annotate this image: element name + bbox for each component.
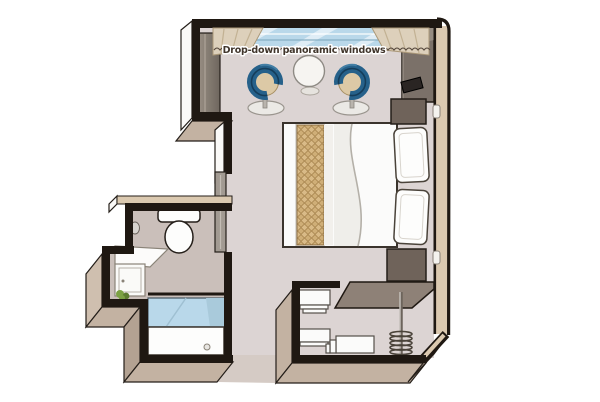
cabin-floor-plan: Drop-down panoramic windows [0,0,600,402]
closet-west-wall [292,281,300,363]
alcove-west-wall [102,246,110,307]
shelf [298,329,330,342]
shower-west-wall [140,299,148,362]
bath-west-wall [125,203,133,250]
corridor-wall-upper [224,120,232,174]
shelf-molding [300,305,328,309]
luggage-bench [336,336,374,353]
bath-top-cap [117,196,232,204]
floor-plan-stage: Drop-down panoramic windows [0,0,600,402]
right-wall-cap [434,26,448,334]
bed-sheet-band [324,125,333,245]
nightstand-top [391,99,426,124]
shelf-molding [303,309,326,313]
toilet-bowl [165,221,193,253]
closet-bottom-face [276,363,426,383]
left-wall-upper [192,19,200,118]
bed-runner [297,125,324,245]
bath-bottom-face [124,362,233,382]
bath-top-wall [125,203,232,211]
panoramic-window: Drop-down panoramic windows [213,28,430,56]
round-table [294,56,325,87]
wardrobe-handle [433,105,440,118]
step-wall [192,112,232,121]
bench-step [326,344,330,353]
top-wall [192,19,442,28]
shower [148,294,224,355]
wardrobe-handle [433,251,440,264]
window-label: Drop-down panoramic windows [223,45,386,56]
nightstand-bottom [387,249,426,281]
drain-icon [204,344,210,350]
vanity-knob [122,280,125,283]
table-base [301,87,319,95]
bath-top-face [109,196,117,212]
bath-bottom-wall [140,355,233,363]
shelf [298,290,330,305]
corridor-wall-lower [224,252,232,363]
closet-bottom-wall [292,355,426,363]
shower-tray [148,327,224,355]
shelf-molding [300,342,328,346]
bench-step [330,340,336,353]
left-wall-face [181,21,192,130]
